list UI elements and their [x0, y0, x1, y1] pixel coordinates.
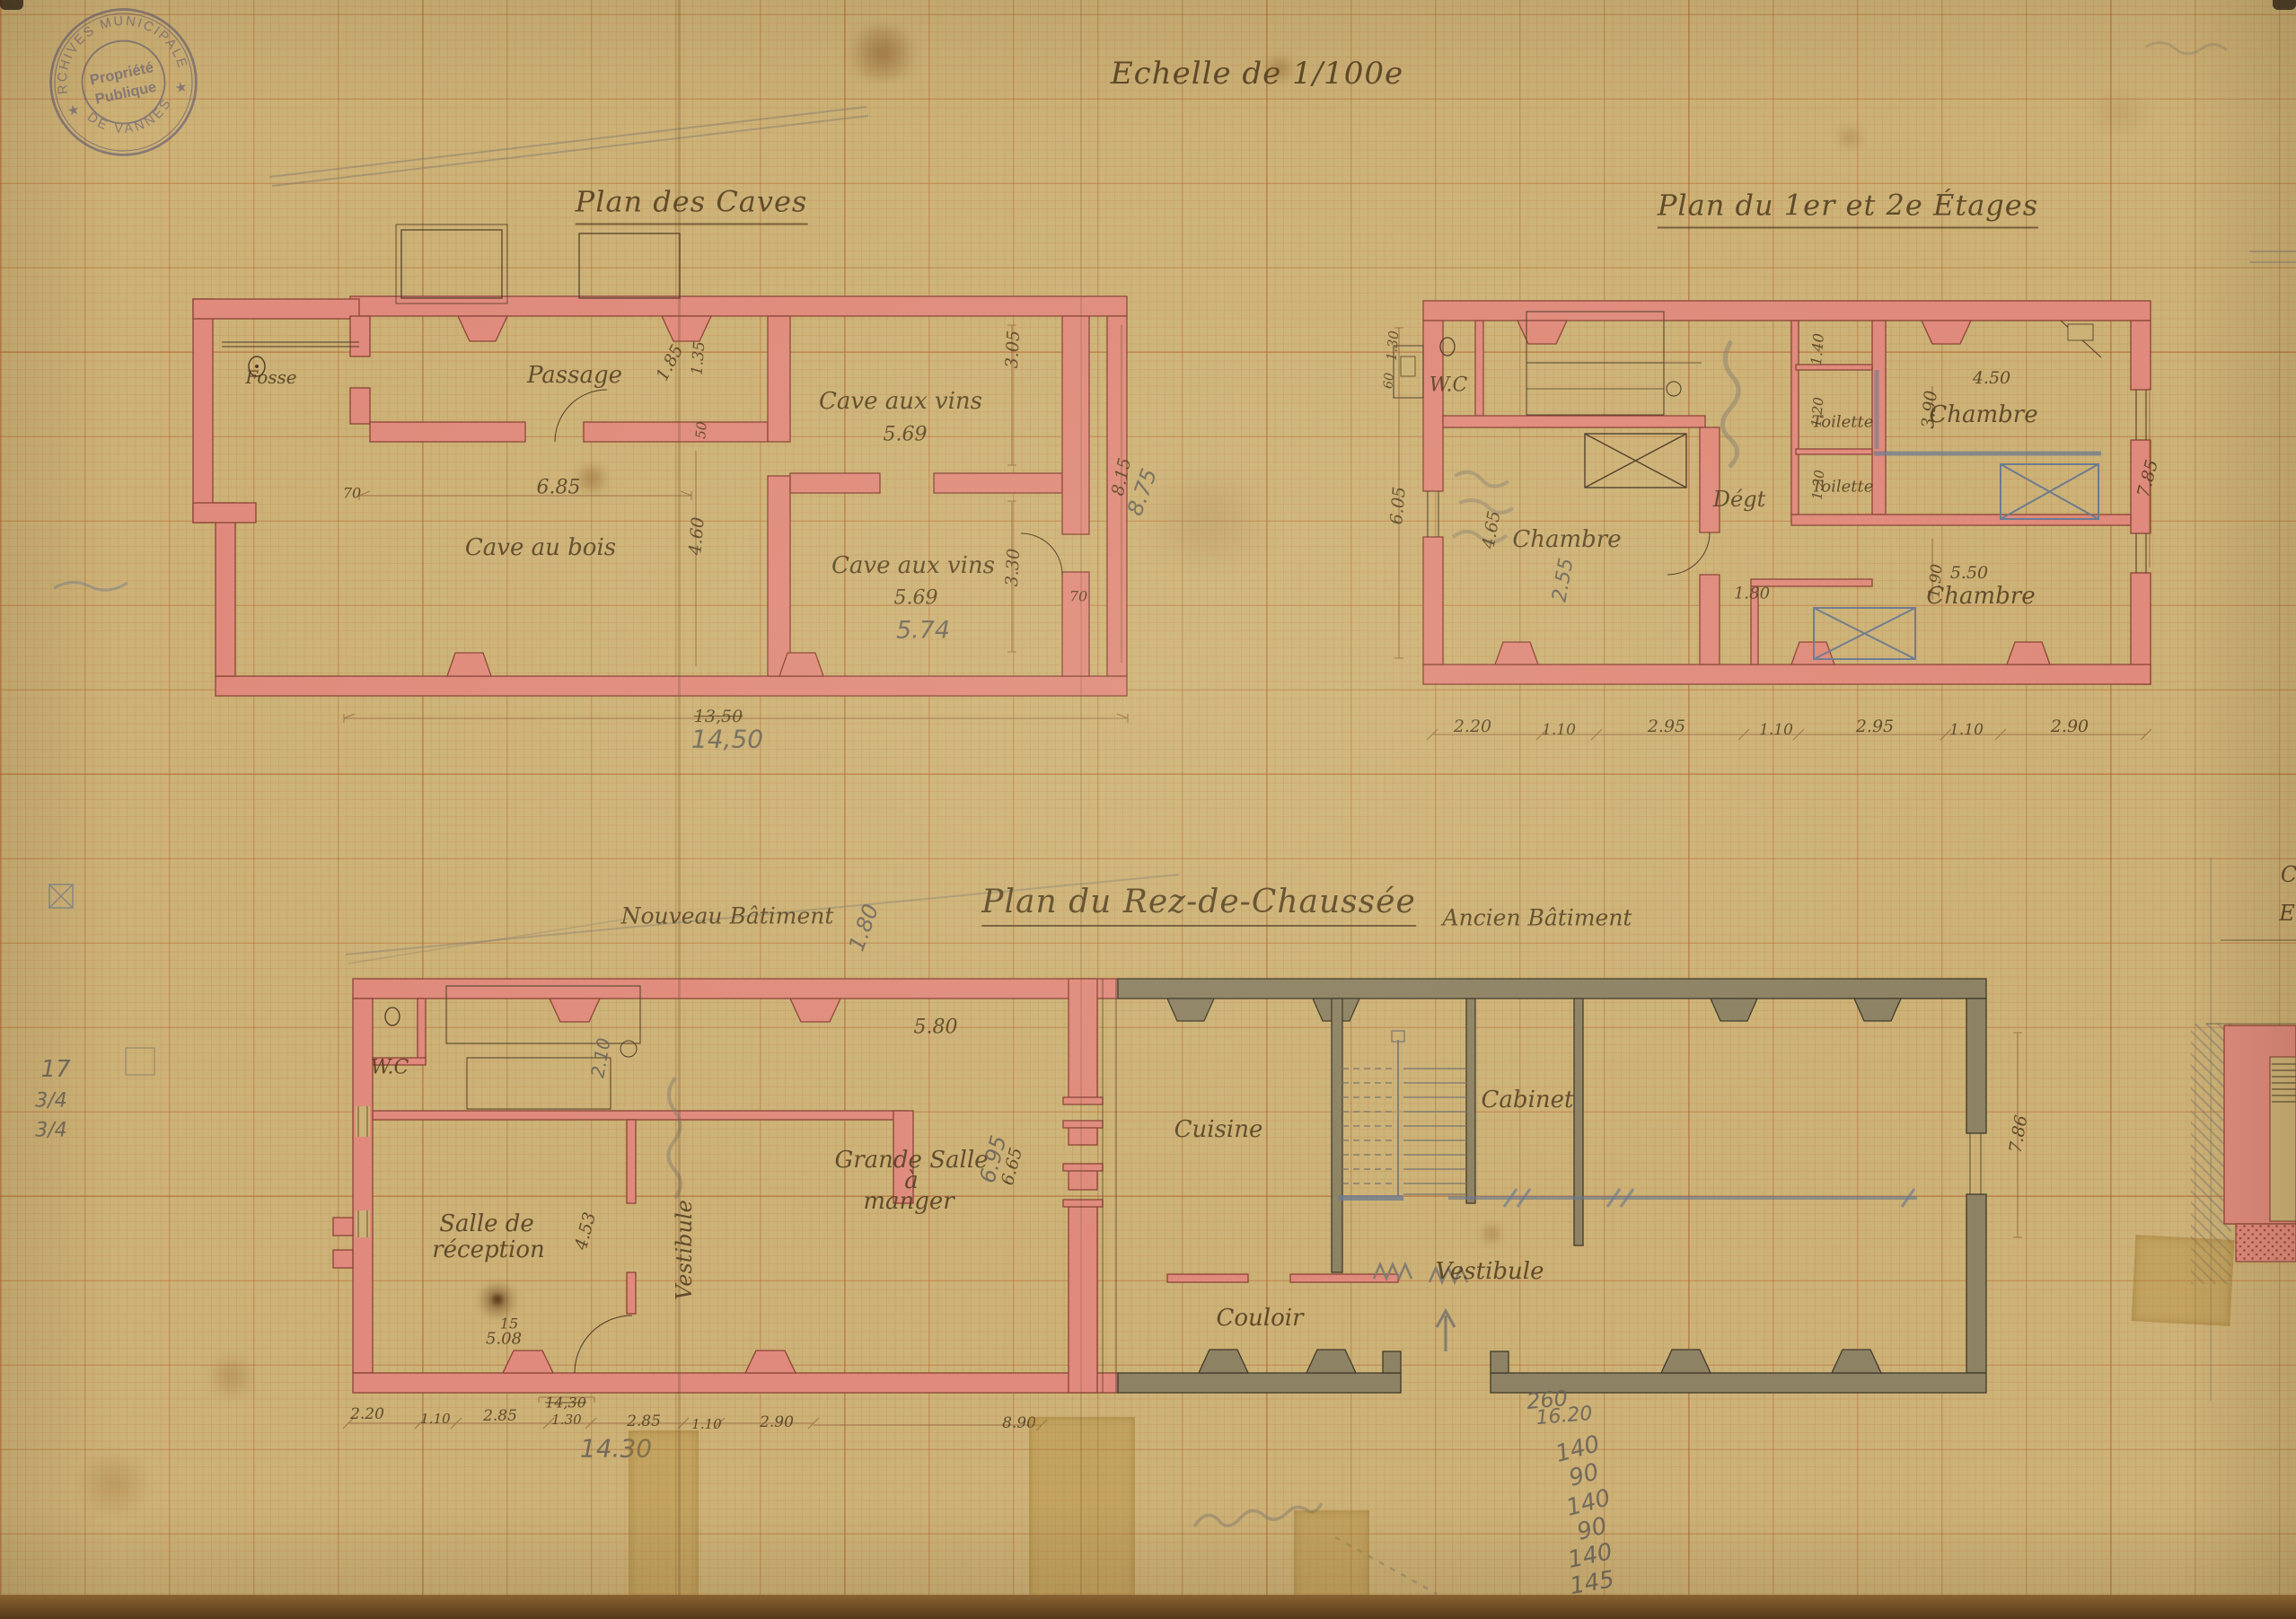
margin-cross-square — [49, 884, 73, 908]
wc-bowl-symbol — [385, 1007, 400, 1025]
scan-corner-mark — [2273, 0, 2296, 10]
tape-repair — [629, 1430, 699, 1619]
pencil-lines-global — [49, 42, 2296, 1594]
door-arc — [575, 1315, 632, 1373]
plan-drawing-layer — [0, 0, 2296, 1619]
scan-corner-mark — [0, 0, 23, 10]
plan-rdc-left-walls — [333, 979, 1118, 1393]
pencil-scribble — [1722, 341, 1738, 467]
tape-repair — [2132, 1235, 2235, 1326]
spring-symbol — [1430, 1268, 1467, 1282]
door-arc — [1667, 532, 1710, 575]
chimney-cross-box — [1585, 434, 1686, 488]
pencil-scribble — [1453, 472, 1513, 542]
stamp-star-right: ★ — [173, 79, 189, 96]
plan-etages-walls — [1394, 301, 2151, 684]
desk-edge — [0, 1595, 2296, 1619]
chimney-cross-box — [2001, 464, 2098, 519]
door-arc — [1021, 533, 1062, 575]
plan-rdc-left-stairs — [446, 986, 640, 1109]
plan-rdc-pencil-stairs — [1338, 1031, 1917, 1351]
entry-arrow — [1437, 1311, 1455, 1351]
plan-caves-stairs — [396, 224, 680, 304]
stamp-star-left: ★ — [66, 102, 81, 119]
pencil-scribble — [668, 1078, 681, 1198]
tape-repair — [1029, 1417, 1135, 1619]
chimney-cross-box — [1814, 608, 1915, 659]
plan-rdc-dimension-lines — [343, 1033, 2022, 1430]
margin-square — [126, 1048, 154, 1075]
scanned-floor-plan-sheet: Echelle de 1/100ePlan des CavesPlan du 1… — [0, 0, 2296, 1619]
plan-rdc-right-walls — [1118, 979, 1986, 1393]
blue-note-scribble — [54, 582, 128, 590]
